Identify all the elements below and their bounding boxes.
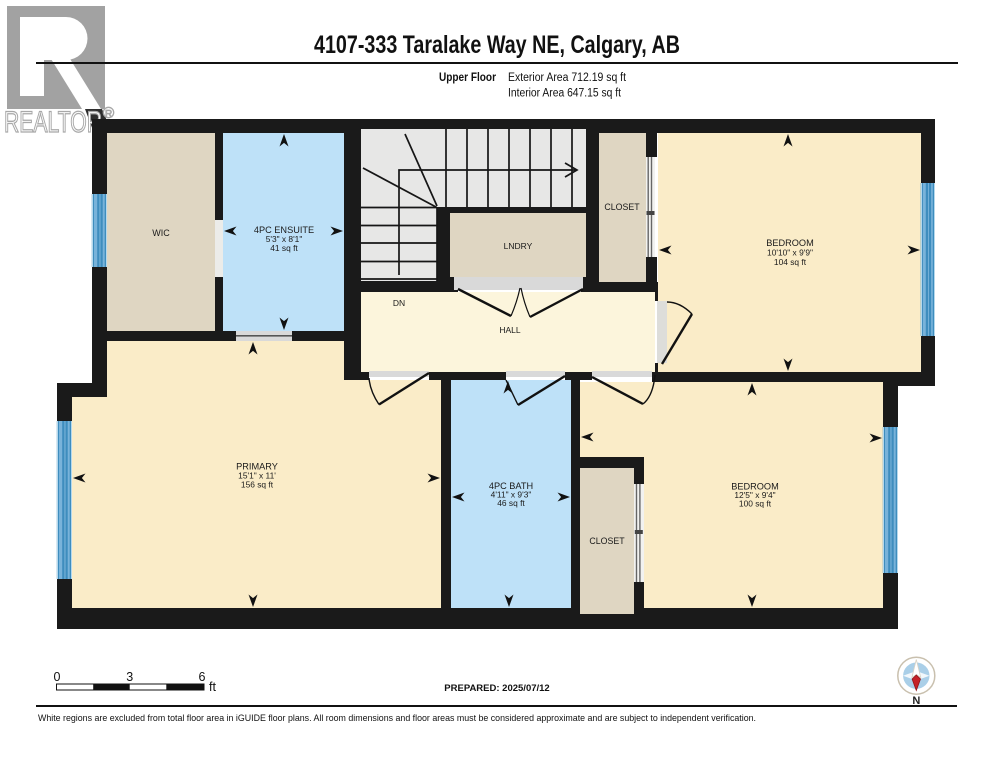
- svg-text:Upper Floor: Upper Floor: [439, 72, 496, 84]
- svg-text:4107-333 Taralake Way NE, Calg: 4107-333 Taralake Way NE, Calgary, AB: [314, 31, 680, 59]
- svg-text:DN: DN: [393, 298, 405, 308]
- svg-text:WIC: WIC: [152, 228, 170, 238]
- svg-text:PREPARED: 2025/07/12: PREPARED: 2025/07/12: [444, 683, 549, 694]
- svg-text:0: 0: [54, 670, 61, 684]
- svg-text:156 sq ft: 156 sq ft: [241, 480, 274, 490]
- svg-text:Interior Area 647.15 sq ft: Interior Area 647.15 sq ft: [508, 88, 622, 100]
- svg-text:LNDRY: LNDRY: [504, 241, 533, 251]
- svg-text:HALL: HALL: [499, 325, 521, 335]
- svg-text:41 sq ft: 41 sq ft: [270, 243, 298, 253]
- svg-text:100 sq ft: 100 sq ft: [739, 499, 772, 509]
- svg-text:White regions are excluded fro: White regions are excluded from total fl…: [38, 713, 756, 724]
- svg-text:CLOSET: CLOSET: [604, 202, 640, 212]
- svg-text:10'10" x 9'9": 10'10" x 9'9": [767, 248, 813, 258]
- svg-text:R: R: [105, 109, 112, 120]
- svg-text:6: 6: [199, 670, 206, 684]
- svg-text:Exterior Area 712.19 sq ft: Exterior Area 712.19 sq ft: [508, 72, 627, 84]
- svg-text:CLOSET: CLOSET: [589, 536, 625, 546]
- svg-text:46 sq ft: 46 sq ft: [497, 498, 525, 508]
- svg-text:ft: ft: [209, 680, 216, 694]
- svg-text:104 sq ft: 104 sq ft: [774, 257, 807, 267]
- svg-text:REALTOR: REALTOR: [4, 106, 102, 139]
- svg-text:BEDROOM: BEDROOM: [766, 238, 813, 248]
- svg-text:3: 3: [126, 670, 133, 684]
